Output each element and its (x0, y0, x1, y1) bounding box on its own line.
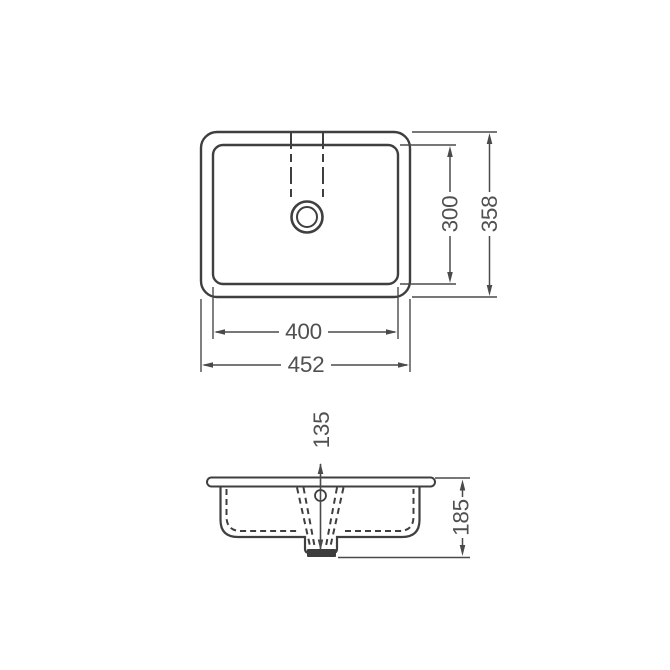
dim-label-300: 300 (438, 196, 463, 233)
arrowhead-right (398, 362, 409, 368)
dim-label-185: 185 (449, 499, 474, 536)
drain-hole-inner (297, 207, 317, 227)
arrowhead-up (487, 133, 493, 144)
arrowhead-left (202, 362, 213, 368)
arrowhead-up (447, 146, 453, 157)
arrowhead-down (487, 285, 493, 296)
dimension-bowl-depth: 135 (309, 412, 334, 551)
plan-view: 300 358 400 (201, 132, 502, 377)
technical-drawing-page: 300 358 400 (0, 0, 670, 670)
dimension-inner-width: 400 (213, 287, 398, 344)
arrowhead-right (386, 329, 397, 335)
basin-inner-edge (213, 145, 398, 284)
arrowhead-down (318, 540, 324, 551)
dim-label-452: 452 (288, 352, 325, 377)
dim-label-358: 358 (477, 196, 502, 233)
dim-label-135: 135 (309, 412, 334, 449)
dim-label-400: 400 (285, 319, 322, 344)
dimension-overall-depth: 185 (338, 478, 474, 558)
section-view: 135 185 (207, 412, 474, 558)
drain-outlet (307, 549, 336, 557)
arrowhead-left (214, 329, 225, 335)
arrowhead-up (460, 480, 466, 491)
basin-dimension-drawing: 300 358 400 (0, 0, 670, 670)
arrowhead-down (460, 545, 466, 556)
arrowhead-down (447, 272, 453, 283)
basin-outer-rim (201, 132, 410, 297)
arrowhead-up (318, 463, 324, 474)
